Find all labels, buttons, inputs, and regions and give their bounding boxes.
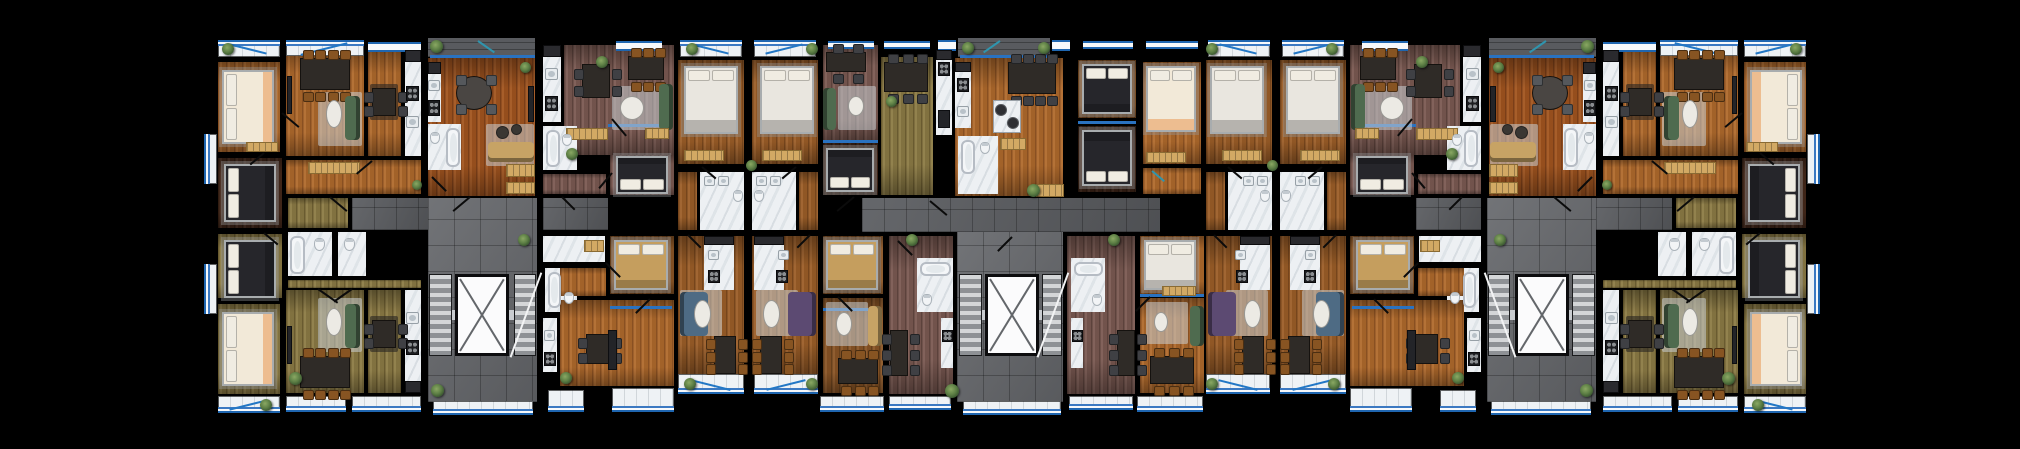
chair [1677,348,1688,358]
railing [889,404,951,410]
bathtub [290,236,305,274]
sofa [1664,96,1679,140]
plant [1446,148,1458,160]
kitchen-counter [1240,236,1270,245]
toilet [314,238,325,251]
bed [1750,312,1802,386]
side-table [1515,126,1528,139]
plant [1494,234,1506,246]
chair [303,348,314,358]
plant [520,62,531,73]
balcony [612,388,674,412]
railing [433,409,533,415]
railing [1350,406,1412,412]
bed [1748,240,1800,298]
stove [1605,340,1618,355]
pillows [830,177,870,188]
tv-cabinet [1407,330,1416,370]
bed [1210,66,1264,134]
bed [616,156,668,194]
corridor-floor [352,198,428,230]
wardrobe [584,240,604,252]
sink [1584,80,1596,91]
toilet [733,190,743,202]
dining-table [1150,356,1194,384]
plant [1580,384,1593,397]
chair [1406,69,1416,80]
sink [1257,176,1268,186]
coffee-table [326,100,342,128]
tv-cabinet [608,330,617,370]
corridor-floor [1416,198,1481,230]
staircase [959,274,982,356]
window [884,41,930,49]
plant [686,43,698,55]
pillows [226,74,237,140]
hallway-floor [288,280,421,288]
dining-table [1414,64,1442,98]
foot-band [263,72,272,142]
foot-band [762,120,812,132]
chair [1312,364,1322,375]
chair [855,386,866,396]
chair [1312,352,1322,363]
chair [631,48,642,58]
chair [868,386,879,396]
balcony [433,401,533,415]
toilet [344,238,355,251]
kitchen-floor [941,318,953,368]
chair [1375,82,1386,92]
chair [1620,338,1630,349]
staircase [1042,274,1062,356]
chair [1011,54,1022,64]
sofa [1664,304,1679,348]
sofa [1208,292,1236,336]
side-balcony [204,264,217,314]
stove [544,352,556,366]
chair [1654,324,1664,335]
plant [1493,62,1504,73]
foot-band [1148,119,1194,130]
sink [406,312,419,324]
bed [1356,156,1408,194]
side-balcony [204,134,217,184]
kitchen-counter [1290,236,1320,245]
foot-band [616,280,666,288]
bathtub [548,272,561,308]
railing [1814,134,1820,184]
chair [578,353,588,364]
stove [942,330,953,342]
staircase [1572,274,1595,356]
wardrobe [645,128,669,139]
chair [1562,75,1573,86]
pillows [1150,70,1192,81]
chair [888,54,899,64]
plant [1790,43,1802,55]
chair [1169,348,1180,358]
foot-band [1358,158,1406,164]
railing [1814,264,1820,314]
chair [1702,50,1713,60]
chair [1689,390,1700,400]
chair [1654,92,1664,103]
plant [518,234,530,246]
sink [406,116,419,128]
pillows [228,168,239,218]
plant [806,378,818,390]
toilet [1584,132,1594,144]
chair [853,74,864,84]
chair [574,69,584,80]
corridor-floor [1596,198,1672,230]
chair [1109,334,1119,345]
stove [545,96,558,111]
chair [910,365,920,376]
chair [1154,386,1165,396]
chair [1109,350,1119,361]
plant [1581,40,1594,53]
kitchen-counter [405,381,421,393]
stove [708,270,720,283]
sofa [788,292,816,336]
toilet [1260,190,1270,202]
pillows [830,244,874,255]
dining-table [1414,334,1438,364]
bed [1286,66,1340,134]
bathtub [1719,236,1734,274]
toilet [564,292,574,304]
chair [1035,96,1046,106]
sofa [868,306,882,346]
stove [1304,270,1316,283]
kitchen-floor [1603,50,1619,156]
chair [882,334,892,345]
chair [643,82,654,92]
kitchen-counter [428,62,441,74]
bed [760,66,814,134]
chair [1137,350,1147,361]
sink [708,250,719,260]
chair [833,74,844,84]
chair [1023,96,1034,106]
pillows [764,70,810,81]
wardrobe [762,150,802,161]
sink [756,176,767,186]
chair [1234,364,1244,375]
pillows [1360,244,1406,255]
balcony [1603,396,1672,412]
chair [882,365,892,376]
plant [1452,372,1464,384]
pillows [688,70,734,81]
sink [957,106,969,117]
wardrobe [684,150,724,161]
chair [1444,69,1454,80]
chair [1702,390,1713,400]
chair [1183,386,1194,396]
pillows [1086,171,1128,182]
elevator [1515,274,1569,356]
foot-band [1358,280,1408,288]
chair [315,348,326,358]
bed [1082,64,1132,114]
pillows [1290,70,1336,81]
chair [1234,352,1244,363]
stove [776,270,788,283]
kitchen-counter [1583,62,1596,74]
sink [1466,68,1479,80]
bed [1082,130,1132,186]
chair [456,75,467,86]
railing [1678,406,1738,412]
window [1083,41,1133,49]
stove [428,100,440,116]
foot-band [828,150,872,157]
bathtub [546,130,560,167]
floor-plan [0,0,2020,449]
stair-divider [1037,273,1070,358]
chair [1677,50,1688,60]
bed [1144,240,1196,290]
toilet [1669,238,1680,251]
railing [1206,388,1270,394]
dining-table [1008,62,1056,94]
chair [1312,339,1322,350]
coffee-table [1682,308,1698,336]
tv-cabinet [287,326,292,364]
bed [222,70,274,144]
chair [1444,86,1454,97]
plant [684,378,696,390]
foot-band [618,158,666,164]
wardrobe [566,128,608,140]
plant [1027,184,1040,197]
stove [406,340,419,355]
balcony [820,396,884,412]
round-table [456,76,492,110]
wardrobe [506,182,535,194]
chair [841,350,852,360]
fridge [938,110,950,128]
chair [1266,339,1276,350]
chair [1280,352,1290,363]
chair [882,350,892,361]
chair [1169,386,1180,396]
chair [752,364,762,375]
stove [1466,96,1479,111]
chair [1266,352,1276,363]
bed [1356,240,1410,290]
hallway-floor [1418,174,1481,194]
pillows [1785,168,1796,218]
toilet [1699,238,1710,251]
pillows [620,179,664,190]
chair [1363,48,1374,58]
sofa [1190,306,1204,346]
staircase [514,274,536,356]
chair [364,92,374,103]
kitchen-counter [1463,45,1481,57]
chair [1266,364,1276,375]
chair [1532,104,1543,115]
stove [1468,352,1480,366]
railing [820,406,884,412]
foot-band [1084,104,1130,112]
chair [1047,96,1058,106]
corridor-floor [543,198,608,230]
bed [684,66,738,134]
chair [1654,338,1664,349]
dining-table [300,58,350,90]
wardrobe [1746,142,1778,152]
chair [752,352,762,363]
chair [1234,339,1244,350]
pillows [1787,74,1798,140]
sink [1305,250,1316,260]
foot-band [1752,314,1761,384]
plant [1328,378,1340,390]
chair [1047,54,1058,64]
glass-partition [1078,121,1136,124]
chair [328,348,339,358]
toilet [754,190,764,202]
plant [1038,42,1050,54]
plant [430,40,443,53]
balcony [1440,390,1476,412]
chair [706,352,716,363]
chair [917,94,928,104]
wardrobe [308,162,360,174]
plant [1206,378,1218,390]
plant [1326,43,1338,55]
toilet [1450,292,1460,304]
foot-band [265,242,274,296]
dining-table [1242,336,1264,374]
coffee-table [694,300,711,328]
bed [826,148,874,192]
tv-cabinet [528,86,534,122]
chair [364,324,374,335]
plant [1602,180,1612,190]
kitchen-counter [1603,50,1619,62]
chair [364,338,374,349]
bed [614,240,668,290]
railing [286,40,364,46]
dining-table [884,62,928,92]
chair [1137,334,1147,345]
chair [738,339,748,350]
foot-band [263,314,272,384]
elevator [455,274,509,356]
window [1052,40,1070,51]
chair [340,348,351,358]
chair [1280,364,1290,375]
kitchen-floor [405,50,421,156]
staircase [429,274,452,356]
chair [1654,106,1664,117]
chair [706,364,716,375]
foot-band [686,120,736,132]
chair [841,386,852,396]
chair [1387,82,1398,92]
plant [289,372,302,385]
hallway-floor [799,172,818,230]
plant [962,42,974,54]
chair [1035,54,1046,64]
chair [315,50,326,60]
dining-table [582,64,610,98]
chair [903,94,914,104]
door-swing [837,196,855,212]
plant [746,160,757,171]
plant [1752,399,1764,411]
kitchen-counter [936,50,952,60]
chair [1620,324,1630,335]
bathtub [1464,130,1478,167]
chair [1387,48,1398,58]
wardrobe [1036,184,1064,197]
kitchen-counter [405,50,421,62]
pillows [228,244,239,294]
railing [963,409,1061,415]
plant [1108,234,1120,246]
bed [224,240,276,298]
stove [1584,100,1596,116]
chair [1440,353,1450,364]
chair [340,390,351,400]
chair [784,364,794,375]
balcony [1069,396,1133,410]
stove [957,78,969,92]
chair [1440,338,1450,349]
dining-table [1674,356,1724,388]
wardrobe [246,142,278,152]
side-table [496,126,509,139]
chair [1620,92,1630,103]
chair [315,390,326,400]
stove [938,62,950,76]
foot-band [1288,120,1338,132]
sofa [345,304,360,348]
plant [596,56,608,68]
hallway-floor [1603,280,1736,288]
sink [1295,176,1306,186]
railing [1440,406,1476,412]
dining-table [838,358,878,384]
chair [578,338,588,349]
dining-table [760,336,782,374]
bed [1146,66,1196,132]
coffee-table [1154,312,1168,332]
chair [917,54,928,64]
coffee-table [763,300,780,328]
railing [1491,409,1591,415]
pillows [1086,68,1128,79]
foot-band [1084,132,1130,141]
plant [260,399,272,411]
bed [224,164,276,222]
railing [1208,40,1270,46]
bed [1750,70,1802,144]
coffee-table [1313,300,1330,328]
pillows [618,244,664,255]
balcony [1137,396,1203,412]
railing-line [1489,55,1594,58]
pillows [1360,179,1404,190]
sink [1605,116,1618,128]
